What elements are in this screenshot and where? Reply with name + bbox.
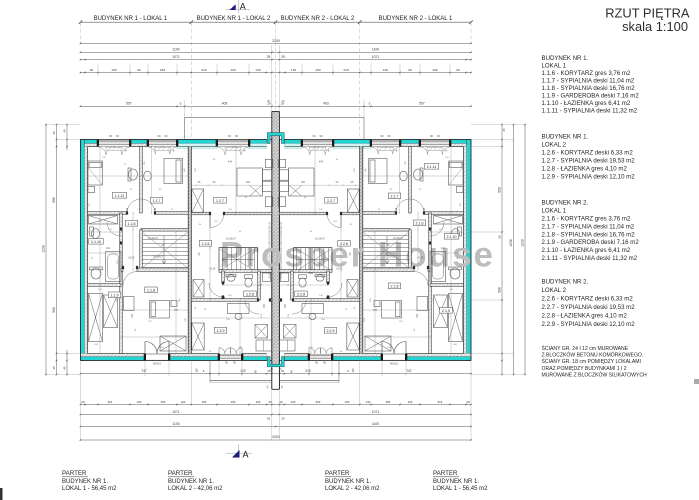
svg-text:2.1.6: 2.1.6 <box>416 221 424 225</box>
svg-text:1.1.9 - GARDEROBA deski 7,16 m: 1.1.9 - GARDEROBA deski 7,16 m2 <box>542 92 640 99</box>
svg-text:40: 40 <box>63 366 67 370</box>
svg-text:90: 90 <box>225 361 228 365</box>
svg-text:LOKAL 2 - 42,06 m2: LOKAL 2 - 42,06 m2 <box>168 486 223 492</box>
svg-text:10: 10 <box>279 400 283 404</box>
svg-text:1239: 1239 <box>521 239 525 247</box>
svg-text:2.2.8: 2.2.8 <box>297 292 305 296</box>
svg-text:140: 140 <box>181 400 186 404</box>
svg-text:1.2.7: 1.2.7 <box>216 199 224 203</box>
svg-text:557: 557 <box>126 101 132 105</box>
svg-text:90: 90 <box>320 134 323 138</box>
svg-text:130: 130 <box>202 400 207 404</box>
svg-text:+3,25: +3,25 <box>209 267 216 271</box>
svg-text:ŚCIANY GR. 18 cm POMIĘDZY LOKA: ŚCIANY GR. 18 cm POMIĘDZY LOKALAMI <box>542 357 641 365</box>
svg-text:ORAZ POMIĘDZY BUDYNKAMI 1 I 2: ORAZ POMIĘDZY BUDYNKAMI 1 I 2 <box>542 366 627 372</box>
svg-text:90: 90 <box>388 134 391 138</box>
svg-text:BUDYNEK NR 1.: BUDYNEK NR 1. <box>62 479 108 485</box>
svg-text:180: 180 <box>416 313 419 318</box>
svg-text:BUDYNEK NR 2 - LOKAL 2: BUDYNEK NR 2 - LOKAL 2 <box>281 16 355 22</box>
svg-text:PARTER: PARTER <box>433 470 458 477</box>
svg-text:BUDYNEK NR 1.: BUDYNEK NR 1. <box>542 133 589 140</box>
svg-text:314: 314 <box>108 400 113 404</box>
svg-text:180: 180 <box>131 313 134 318</box>
svg-text:16x18x27: 16x18x27 <box>148 238 159 240</box>
svg-text:1100: 1100 <box>372 48 379 52</box>
svg-text:90: 90 <box>109 134 112 138</box>
svg-text:90: 90 <box>498 235 502 239</box>
svg-text:90: 90 <box>158 134 161 138</box>
svg-text:BUDYNEK NR 1 - LOKAL 2: BUDYNEK NR 1 - LOKAL 2 <box>197 16 271 22</box>
svg-text:2200: 2200 <box>272 39 280 43</box>
svg-text:2.1.8 - SYPIALNIA deski 16,76: 2.1.8 - SYPIALNIA deski 16,76 m2 <box>542 231 636 238</box>
svg-text:90: 90 <box>381 134 384 138</box>
svg-text:2.2.7 - SYPIALNIA deski 19,53: 2.2.7 - SYPIALNIA deski 19,53 m2 <box>542 304 636 311</box>
svg-text:LOKAL 2 - 42,06 m2: LOKAL 2 - 42,06 m2 <box>325 486 380 492</box>
svg-text:90: 90 <box>233 361 236 365</box>
svg-text:LOKAL 2: LOKAL 2 <box>542 287 567 294</box>
svg-text:29: 29 <box>281 55 285 59</box>
svg-text:1.1.7: 1.1.7 <box>153 199 161 203</box>
svg-text:2.2.6 - KORYTARZ deski 6,33 m2: 2.2.6 - KORYTARZ deski 6,33 m2 <box>542 296 634 303</box>
svg-text:90: 90 <box>456 68 460 72</box>
svg-text:140: 140 <box>291 400 296 404</box>
svg-text:253: 253 <box>386 400 391 404</box>
svg-text:29: 29 <box>81 400 85 404</box>
svg-text:1.2.6 - KORYTARZ deski 6,33 m2: 1.2.6 - KORYTARZ deski 6,33 m2 <box>542 149 634 156</box>
svg-text:210: 210 <box>441 246 446 250</box>
svg-text:130: 130 <box>345 400 350 404</box>
svg-text:1.1.10: 1.1.10 <box>91 240 101 244</box>
svg-text:160: 160 <box>160 68 165 72</box>
svg-text:598: 598 <box>52 307 56 313</box>
svg-text:253: 253 <box>231 400 236 404</box>
svg-text:1239: 1239 <box>42 245 46 253</box>
svg-text:210: 210 <box>106 246 111 250</box>
svg-text:90: 90 <box>313 134 316 138</box>
svg-text:1.1.7 - SYPIALNIA deski 11,04: 1.1.7 - SYPIALNIA deski 11,04 m2 <box>542 77 635 84</box>
svg-text:1.1.10 - ŁAZIENKA gres 6,41 m2: 1.1.10 - ŁAZIENKA gres 6,41 m2 <box>542 100 631 107</box>
svg-text:219: 219 <box>240 369 246 373</box>
svg-text:40: 40 <box>63 129 67 133</box>
svg-text:90: 90 <box>437 134 440 138</box>
svg-text:747: 747 <box>406 369 412 373</box>
svg-text:BUDYNEK NR 1 - LOKAL 1: BUDYNEK NR 1 - LOKAL 1 <box>94 16 168 22</box>
svg-text:1.1.9: 1.1.9 <box>111 293 119 297</box>
svg-text:1.2.6: 1.2.6 <box>202 242 210 246</box>
svg-text:403: 403 <box>323 101 329 105</box>
svg-text:440: 440 <box>228 159 233 163</box>
svg-text:1071: 1071 <box>372 410 380 414</box>
svg-text:16x18x27: 16x18x27 <box>153 256 164 258</box>
svg-text:A: A <box>240 2 246 12</box>
svg-text:LOKAL 1: LOKAL 1 <box>542 62 567 69</box>
svg-text:2.2.8 - ŁAZIENKA gres 4,10 m2: 2.2.8 - ŁAZIENKA gres 4,10 m2 <box>542 313 628 320</box>
svg-text:290: 290 <box>263 303 266 308</box>
svg-text:PARTER: PARTER <box>325 470 350 477</box>
svg-text:598: 598 <box>498 287 502 293</box>
svg-text:559: 559 <box>498 187 502 193</box>
svg-text:2.1.11: 2.1.11 <box>427 165 437 169</box>
svg-text:1236: 1236 <box>509 239 513 247</box>
svg-text:90: 90 <box>116 134 119 138</box>
svg-text:2200: 2200 <box>272 435 280 439</box>
svg-text:29: 29 <box>281 417 285 421</box>
svg-text:160: 160 <box>111 68 116 72</box>
svg-text:A: A <box>242 450 248 460</box>
svg-text:2.2.7: 2.2.7 <box>327 199 335 203</box>
svg-text:LOKAL 1 - 56,45 m2: LOKAL 1 - 56,45 m2 <box>62 486 117 492</box>
svg-text:557: 557 <box>419 101 425 105</box>
svg-text:16x18x27: 16x18x27 <box>393 238 404 240</box>
svg-text:120: 120 <box>351 368 355 373</box>
svg-text:LOKAL 2: LOKAL 2 <box>542 141 567 148</box>
svg-text:2.1.11 - SYPIALNIA deski 11,32: 2.1.11 - SYPIALNIA deski 11,32 m2 <box>542 255 638 262</box>
svg-text:1.2.9 - SYPIALNIA deski 12,10: 1.2.9 - SYPIALNIA deski 12,10 m2 <box>542 173 636 180</box>
svg-text:16x18x27: 16x18x27 <box>388 256 399 258</box>
svg-text:45: 45 <box>502 128 506 132</box>
svg-text:29: 29 <box>466 400 470 404</box>
svg-text:1.1.6 - KORYTARZ gres 3,76 m2: 1.1.6 - KORYTARZ gres 3,76 m2 <box>542 70 631 77</box>
svg-text:1071: 1071 <box>172 55 180 59</box>
svg-text:190: 190 <box>230 68 235 72</box>
svg-text:45: 45 <box>52 366 56 370</box>
svg-text:253: 253 <box>161 400 166 404</box>
svg-text:BUDYNEK NR 1.: BUDYNEK NR 1. <box>325 479 371 485</box>
svg-text:Z BLOCZKÓW BETONU KOMÓRKOWEGO.: Z BLOCZKÓW BETONU KOMÓRKOWEGO. <box>542 351 644 358</box>
svg-text:LOKAL 1 - 56,45 m2: LOKAL 1 - 56,45 m2 <box>433 486 488 492</box>
svg-text:160: 160 <box>383 68 388 72</box>
svg-text:90: 90 <box>137 68 141 72</box>
svg-text:ŚCIANY GR. 24 I 12 cm MUROWANE: ŚCIANY GR. 24 I 12 cm MUROWANE <box>542 344 629 352</box>
svg-text:440: 440 <box>319 159 324 163</box>
svg-text:2.2.6: 2.2.6 <box>340 242 348 246</box>
svg-text:29: 29 <box>268 369 271 373</box>
svg-text:253: 253 <box>316 400 321 404</box>
svg-text:2.1.9: 2.1.9 <box>442 309 450 313</box>
svg-text:2.1.7: 2.1.7 <box>391 194 399 198</box>
svg-text:90: 90 <box>235 134 238 138</box>
svg-text:90: 90 <box>228 134 231 138</box>
svg-text:1.2.7 - SYPIALNIA deski 19,53: 1.2.7 - SYPIALNIA deski 19,53 m2 <box>542 157 636 164</box>
svg-text:BUDYNEK NR 2 - LOKAL 1: BUDYNEK NR 2 - LOKAL 1 <box>379 16 453 22</box>
svg-text:747: 747 <box>141 369 147 373</box>
svg-text:1.1.6: 1.1.6 <box>128 222 136 226</box>
svg-text:1.2.8 - ŁAZIENKA gres 4,10 m2: 1.2.8 - ŁAZIENKA gres 4,10 m2 <box>542 165 628 172</box>
svg-text:314: 314 <box>438 400 443 404</box>
svg-text:1.1.11 - SYPIALNIA deski 11,32: 1.1.11 - SYPIALNIA deski 11,32 m2 <box>542 107 638 114</box>
svg-text:90: 90 <box>408 68 412 72</box>
svg-text:130: 130 <box>291 68 296 72</box>
svg-text:90: 90 <box>315 361 318 365</box>
svg-text:90: 90 <box>430 134 433 138</box>
svg-text:1.1.8 - SYPIALNIA deski 16,76: 1.1.8 - SYPIALNIA deski 16,76 m2 <box>542 85 636 92</box>
svg-text:2.1.7 - SYPIALNIA deski 11,04: 2.1.7 - SYPIALNIA deski 11,04 m2 <box>542 223 635 230</box>
svg-text:140: 140 <box>408 400 413 404</box>
svg-text:1071: 1071 <box>172 410 180 414</box>
svg-text:16x18x27: 16x18x27 <box>315 239 326 241</box>
svg-text:282: 282 <box>301 181 306 184</box>
svg-text:MUROWANE Z BLOCZKÓW SILIKATOWY: MUROWANE Z BLOCZKÓW SILIKATOWYCH <box>542 371 648 378</box>
svg-text:90: 90 <box>165 134 168 138</box>
svg-text:2.2.9 - SYPIALNIA deski 12,10: 2.2.9 - SYPIALNIA deski 12,10 m2 <box>542 321 636 328</box>
svg-text:+3,25: +3,25 <box>417 256 424 260</box>
svg-text:10: 10 <box>268 400 272 404</box>
svg-text:90: 90 <box>323 361 326 365</box>
svg-text:BUDYNEK NR 1.: BUDYNEK NR 1. <box>542 55 589 62</box>
svg-text:29: 29 <box>281 369 284 373</box>
svg-text:219: 219 <box>343 68 348 72</box>
svg-text:290: 290 <box>284 303 287 308</box>
svg-text:508: 508 <box>52 197 56 203</box>
svg-text:140: 140 <box>256 400 261 404</box>
svg-text:+3,25: +3,25 <box>336 267 343 271</box>
svg-text:29: 29 <box>267 55 271 59</box>
svg-text:278: 278 <box>174 309 179 312</box>
svg-text:120: 120 <box>195 368 199 373</box>
svg-text:90: 90 <box>90 68 94 72</box>
svg-text:130: 130 <box>255 68 260 72</box>
svg-text:29: 29 <box>267 417 271 421</box>
svg-text:skala 1:100: skala 1:100 <box>622 19 688 34</box>
svg-text:BUDYNEK NR 2.: BUDYNEK NR 2. <box>542 200 589 207</box>
svg-text:219: 219 <box>201 68 206 72</box>
svg-text:BUDYNEK NR 1.: BUDYNEK NR 1. <box>433 479 479 485</box>
svg-text:219: 219 <box>305 369 311 373</box>
svg-text:1.2.9: 1.2.9 <box>217 329 225 333</box>
svg-text:2.1.10 - ŁAZIENKA gres 6,41 m2: 2.1.10 - ŁAZIENKA gres 6,41 m2 <box>542 247 631 254</box>
svg-text:90/210: 90/210 <box>390 362 399 366</box>
svg-text:45: 45 <box>52 131 56 135</box>
svg-text:PARTER: PARTER <box>168 470 193 477</box>
svg-text:1.1.8: 1.1.8 <box>147 288 155 292</box>
svg-text:282: 282 <box>246 181 251 184</box>
svg-text:190: 190 <box>315 68 320 72</box>
svg-text:278: 278 <box>373 309 378 312</box>
svg-text:2.2.9: 2.2.9 <box>327 329 335 333</box>
svg-text:2.1.6 - KORYTARZ gres 3,76 m2: 2.1.6 - KORYTARZ gres 3,76 m2 <box>542 216 631 223</box>
svg-text:1100: 1100 <box>172 422 179 426</box>
svg-text:2.1.8: 2.1.8 <box>391 284 399 288</box>
svg-text:PARTER: PARTER <box>62 470 87 477</box>
svg-text:16x18x27: 16x18x27 <box>226 239 237 241</box>
svg-text:403: 403 <box>222 101 228 105</box>
svg-text:+3,25: +3,25 <box>128 256 135 260</box>
svg-text:BUDYNEK NR 2.: BUDYNEK NR 2. <box>542 279 589 286</box>
svg-text:1071: 1071 <box>372 55 380 59</box>
svg-text:2.1.10: 2.1.10 <box>447 235 457 239</box>
svg-text:2.1.9 - GARDEROBA deski 7,16 m: 2.1.9 - GARDEROBA deski 7,16 m2 <box>542 239 640 246</box>
svg-text:140: 140 <box>366 400 371 404</box>
svg-text:BUDYNEK NR 1.: BUDYNEK NR 1. <box>168 479 214 485</box>
svg-text:90/210: 90/210 <box>153 362 162 366</box>
svg-text:LOKAL 1: LOKAL 1 <box>542 208 567 215</box>
svg-text:20: 20 <box>267 99 270 103</box>
svg-text:1.1.11: 1.1.11 <box>115 194 125 198</box>
svg-text:160: 160 <box>432 68 437 72</box>
svg-text:140: 140 <box>137 400 142 404</box>
svg-text:1.2.8: 1.2.8 <box>246 292 254 296</box>
svg-text:20: 20 <box>282 99 285 103</box>
svg-text:1100: 1100 <box>372 422 379 426</box>
svg-text:1100: 1100 <box>172 48 179 52</box>
